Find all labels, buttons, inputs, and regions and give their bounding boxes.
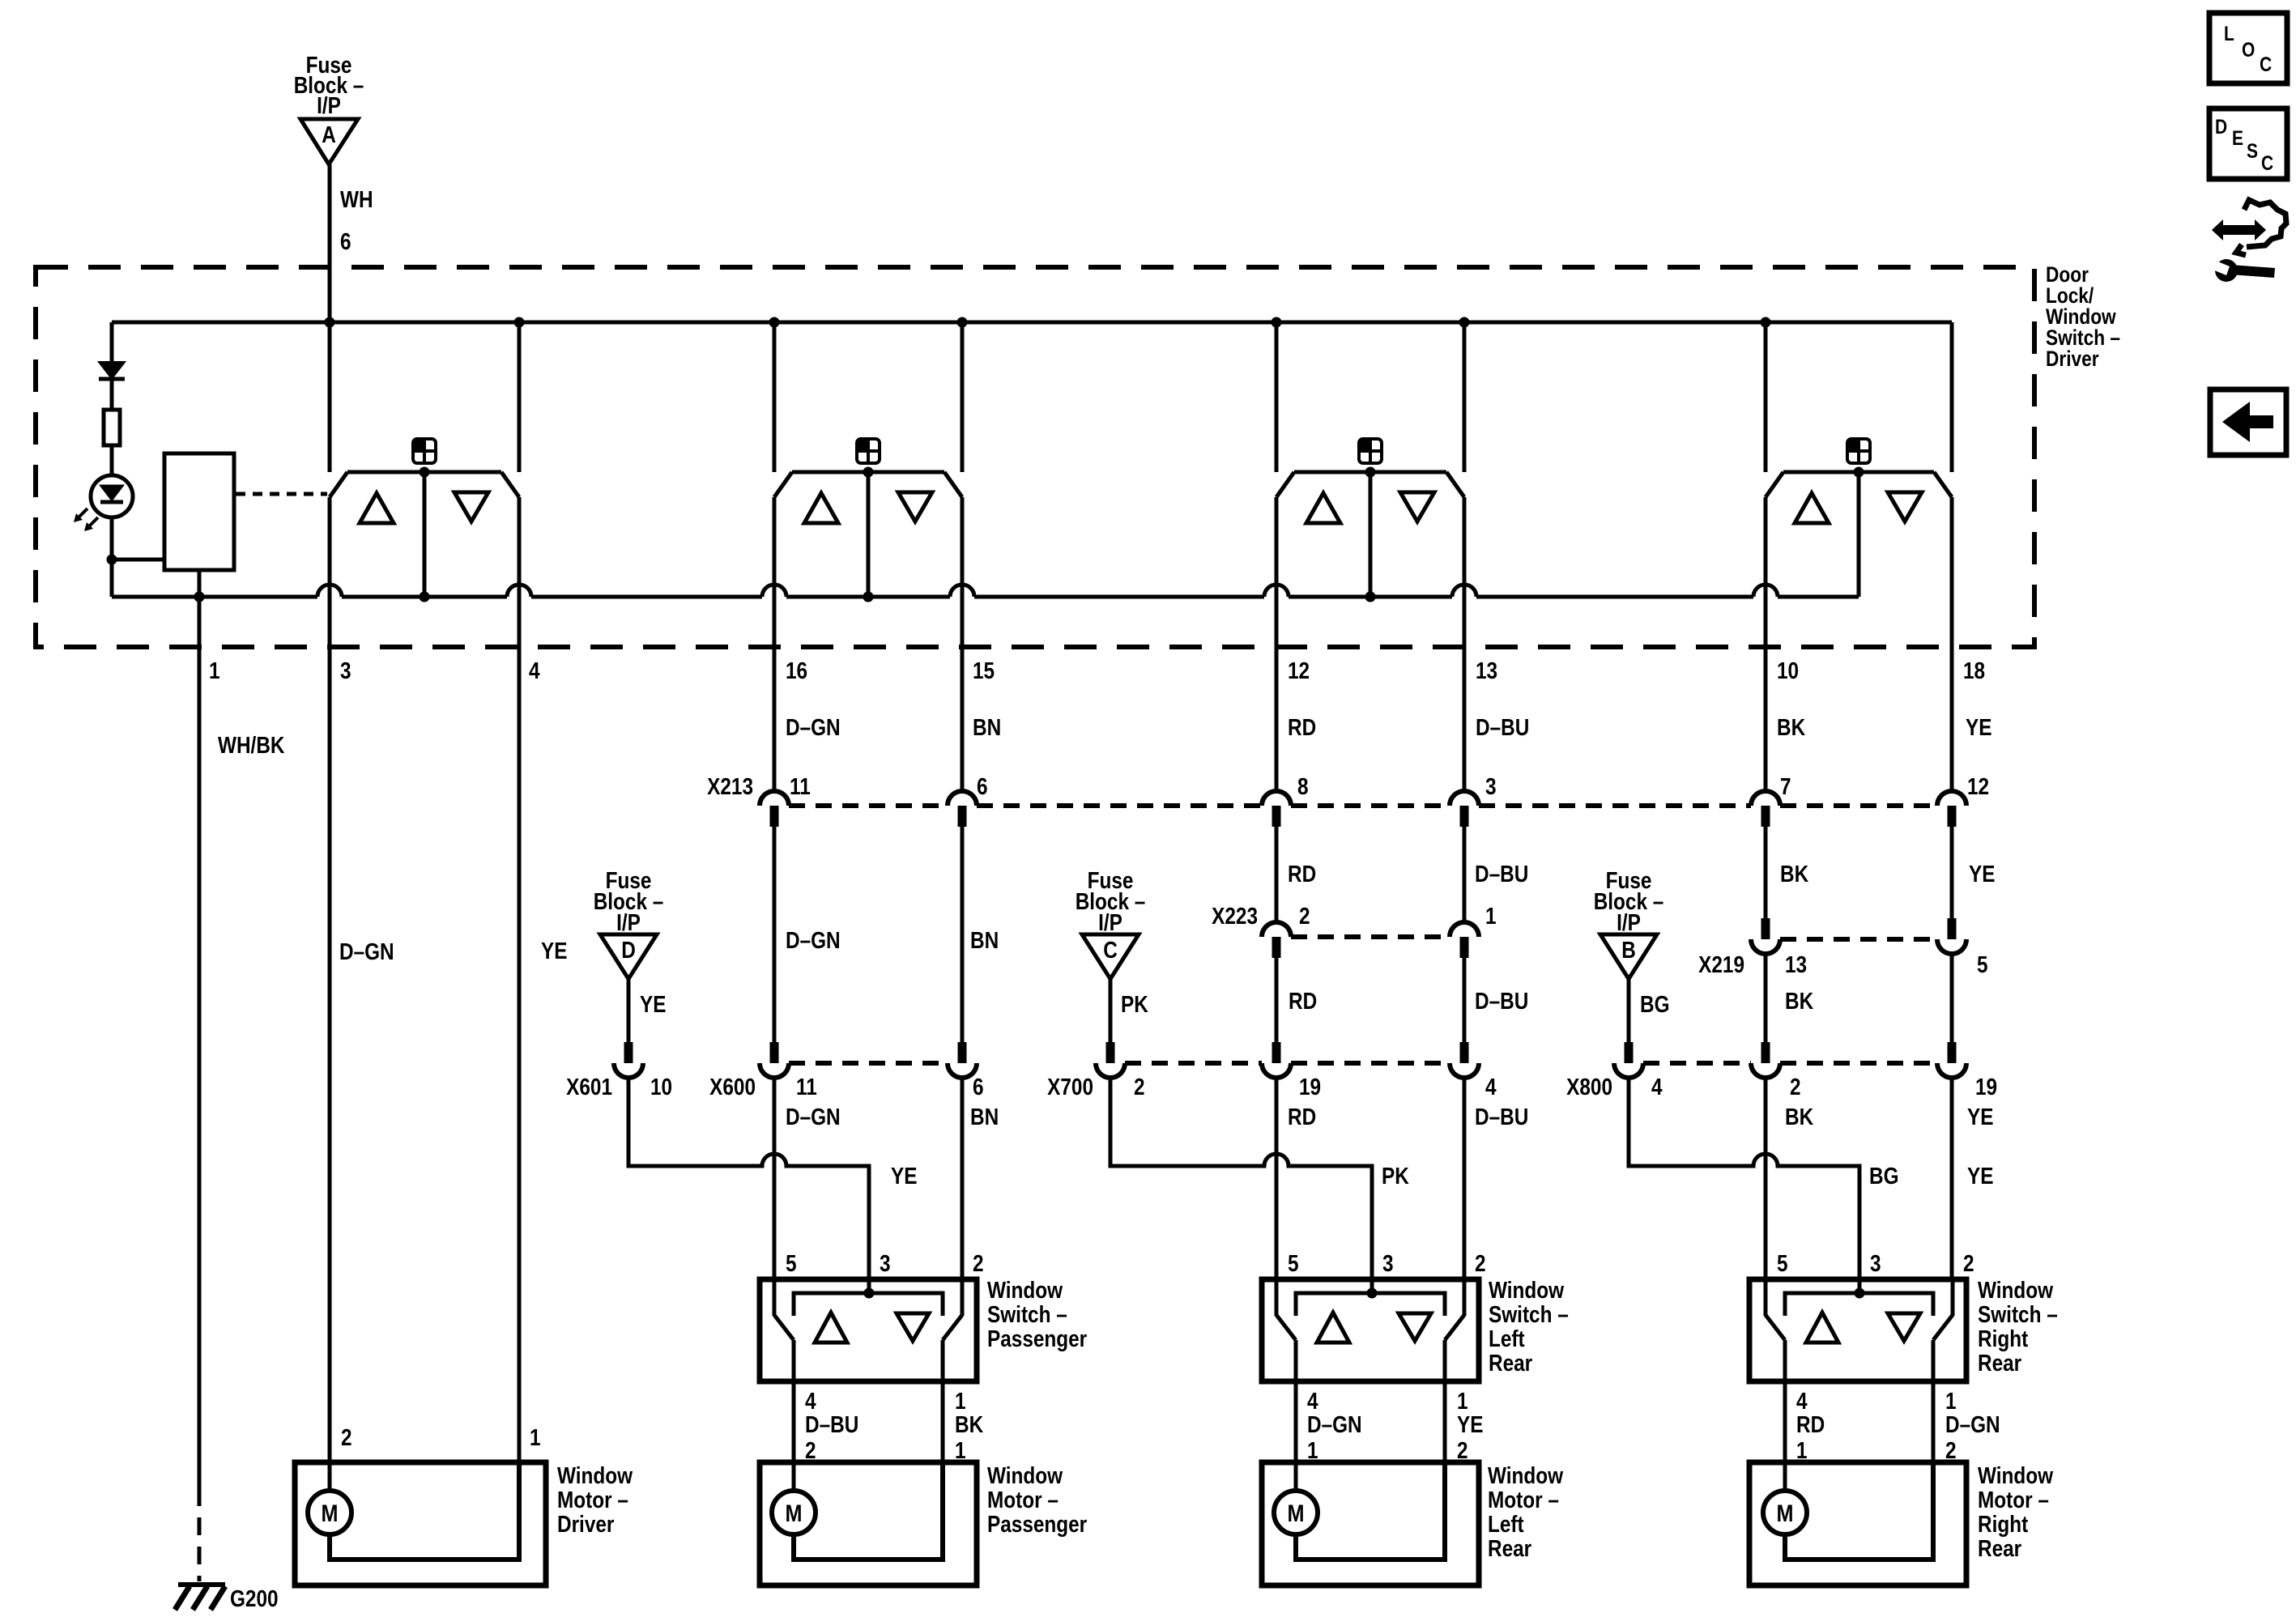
svg-text:Window: Window	[1978, 1277, 2053, 1303]
svg-text:3: 3	[1382, 1250, 1394, 1276]
svg-text:Window: Window	[557, 1462, 633, 1488]
svg-text:3: 3	[340, 657, 351, 683]
svg-text:M: M	[786, 1500, 803, 1527]
svg-text:X700: X700	[1047, 1074, 1093, 1100]
svg-text:X600: X600	[709, 1074, 756, 1100]
svg-text:D–GN: D–GN	[786, 1104, 841, 1130]
svg-text:19: 19	[1299, 1074, 1321, 1100]
svg-text:BN: BN	[970, 927, 999, 953]
svg-text:Window: Window	[987, 1462, 1063, 1488]
svg-text:YE: YE	[1966, 714, 1991, 740]
svg-text:4: 4	[529, 657, 540, 683]
svg-text:D–BU: D–BU	[805, 1411, 858, 1437]
svg-text:D: D	[2215, 115, 2227, 138]
svg-text:11: 11	[790, 773, 811, 799]
svg-text:BK: BK	[1785, 1104, 1814, 1130]
svg-text:BN: BN	[973, 714, 1001, 740]
svg-text:1: 1	[1485, 903, 1497, 929]
svg-text:Window: Window	[1978, 1462, 2053, 1488]
svg-text:D–GN: D–GN	[786, 927, 841, 953]
svg-text:6: 6	[973, 1074, 984, 1100]
svg-text:1: 1	[1945, 1388, 1957, 1414]
svg-text:Left: Left	[1488, 1511, 1524, 1537]
svg-text:Switch –: Switch –	[1978, 1301, 2058, 1327]
svg-text:PK: PK	[1382, 1163, 1409, 1189]
svg-text:WH/BK: WH/BK	[218, 732, 285, 758]
svg-text:2: 2	[1790, 1074, 1801, 1100]
svg-text:C: C	[1103, 937, 1118, 963]
svg-text:1: 1	[209, 657, 220, 683]
svg-text:D–GN: D–GN	[786, 714, 841, 740]
svg-text:C: C	[2261, 151, 2273, 174]
svg-text:D–GN: D–GN	[1307, 1411, 1362, 1437]
svg-text:YE: YE	[1457, 1411, 1483, 1437]
svg-text:Motor –: Motor –	[557, 1487, 628, 1513]
svg-text:BK: BK	[1780, 861, 1809, 887]
svg-text:BK: BK	[1777, 714, 1806, 740]
svg-text:D–BU: D–BU	[1475, 988, 1528, 1014]
svg-text:Switch –: Switch –	[987, 1301, 1067, 1327]
svg-text:12: 12	[1288, 657, 1310, 683]
svg-text:D–BU: D–BU	[1476, 714, 1529, 740]
svg-text:Passenger: Passenger	[987, 1511, 1088, 1537]
svg-text:M: M	[322, 1500, 339, 1527]
svg-text:4: 4	[1651, 1074, 1663, 1100]
svg-text:5: 5	[1977, 951, 1988, 977]
svg-text:5: 5	[1288, 1250, 1299, 1276]
svg-text:X601: X601	[566, 1074, 612, 1100]
svg-text:10: 10	[1777, 657, 1799, 683]
svg-text:X213: X213	[707, 773, 753, 799]
svg-text:L: L	[2224, 22, 2234, 45]
svg-text:1: 1	[955, 1388, 966, 1414]
svg-text:3: 3	[1870, 1250, 1881, 1276]
svg-text:YE: YE	[640, 991, 666, 1017]
svg-text:D–BU: D–BU	[1475, 1104, 1528, 1130]
svg-text:YE: YE	[1967, 1104, 1993, 1130]
svg-text:Driver: Driver	[557, 1511, 615, 1537]
svg-text:Motor –: Motor –	[1488, 1487, 1559, 1513]
svg-text:D–GN: D–GN	[339, 938, 394, 964]
svg-text:X800: X800	[1566, 1074, 1612, 1100]
svg-text:I/P: I/P	[1617, 909, 1641, 935]
svg-text:O: O	[2242, 38, 2255, 61]
svg-text:13: 13	[1785, 951, 1807, 977]
svg-text:Rear: Rear	[1978, 1535, 2022, 1561]
svg-text:RD: RD	[1288, 1104, 1316, 1130]
svg-text:1: 1	[530, 1424, 541, 1450]
svg-text:BK: BK	[955, 1411, 984, 1437]
svg-text:YE: YE	[541, 938, 567, 964]
svg-text:BG: BG	[1640, 991, 1670, 1017]
svg-text:X223: X223	[1212, 903, 1258, 929]
svg-text:C: C	[2260, 53, 2272, 75]
svg-text:E: E	[2232, 126, 2243, 149]
svg-text:BG: BG	[1869, 1163, 1899, 1189]
svg-text:Right: Right	[1978, 1511, 2028, 1537]
svg-text:YE: YE	[891, 1163, 917, 1189]
svg-text:4: 4	[1307, 1388, 1318, 1414]
svg-text:4: 4	[1796, 1388, 1808, 1414]
svg-text:8: 8	[1297, 773, 1309, 799]
svg-text:19: 19	[1975, 1074, 1997, 1100]
svg-text:Rear: Rear	[1978, 1350, 2022, 1376]
svg-text:I/P: I/P	[616, 909, 641, 935]
svg-text:BK: BK	[1785, 988, 1814, 1014]
svg-text:Motor –: Motor –	[987, 1487, 1059, 1513]
svg-text:1: 1	[1457, 1388, 1468, 1414]
svg-text:Driver: Driver	[2046, 347, 2099, 371]
svg-text:RD: RD	[1796, 1411, 1825, 1437]
svg-text:13: 13	[1476, 657, 1497, 683]
svg-text:16: 16	[786, 657, 807, 683]
svg-text:M: M	[1288, 1500, 1305, 1527]
svg-text:2: 2	[1134, 1074, 1145, 1100]
svg-text:RD: RD	[1288, 714, 1316, 740]
svg-text:Window: Window	[1488, 1462, 1563, 1488]
svg-text:Window: Window	[1489, 1277, 1564, 1303]
svg-text:6: 6	[340, 228, 351, 254]
svg-text:4: 4	[805, 1388, 816, 1414]
svg-text:I/P: I/P	[1098, 909, 1122, 935]
svg-text:11: 11	[796, 1074, 817, 1100]
svg-text:YE: YE	[1969, 861, 1995, 887]
svg-text:I/P: I/P	[317, 92, 341, 118]
svg-text:B: B	[1621, 937, 1636, 963]
svg-text:RD: RD	[1288, 861, 1316, 887]
svg-text:BN: BN	[970, 1104, 999, 1130]
svg-text:M: M	[1777, 1500, 1794, 1527]
svg-text:Passenger: Passenger	[987, 1326, 1088, 1351]
svg-text:WH: WH	[340, 186, 373, 212]
svg-text:S: S	[2247, 139, 2258, 162]
svg-text:RD: RD	[1289, 988, 1317, 1014]
svg-text:18: 18	[1963, 657, 1985, 683]
svg-text:7: 7	[1780, 773, 1791, 799]
svg-text:D: D	[621, 937, 636, 963]
svg-text:A: A	[322, 121, 336, 147]
svg-text:G200: G200	[230, 1585, 279, 1611]
svg-text:15: 15	[973, 657, 995, 683]
svg-text:X219: X219	[1698, 951, 1744, 977]
svg-text:2: 2	[1963, 1250, 1974, 1276]
svg-text:Left: Left	[1489, 1326, 1525, 1351]
svg-text:6: 6	[977, 773, 988, 799]
svg-text:5: 5	[786, 1250, 797, 1276]
svg-text:3: 3	[1485, 773, 1497, 799]
svg-text:D–GN: D–GN	[1945, 1411, 2000, 1437]
svg-text:Motor –: Motor –	[1978, 1487, 2049, 1513]
svg-text:2: 2	[973, 1250, 984, 1276]
svg-text:2: 2	[1299, 903, 1310, 929]
svg-text:D–BU: D–BU	[1475, 861, 1528, 887]
svg-text:Right: Right	[1978, 1326, 2028, 1351]
svg-text:12: 12	[1967, 773, 1989, 799]
svg-text:Switch –: Switch –	[1489, 1301, 1569, 1327]
svg-text:Window: Window	[987, 1277, 1063, 1303]
svg-text:4: 4	[1485, 1074, 1497, 1100]
svg-text:3: 3	[880, 1250, 891, 1276]
svg-text:2: 2	[1475, 1250, 1486, 1276]
svg-text:YE: YE	[1967, 1163, 1993, 1189]
svg-text:Rear: Rear	[1489, 1350, 1533, 1376]
svg-text:5: 5	[1777, 1250, 1788, 1276]
svg-text:Rear: Rear	[1488, 1535, 1532, 1561]
svg-text:PK: PK	[1121, 991, 1148, 1017]
svg-text:2: 2	[341, 1424, 352, 1450]
svg-text:10: 10	[650, 1074, 672, 1100]
